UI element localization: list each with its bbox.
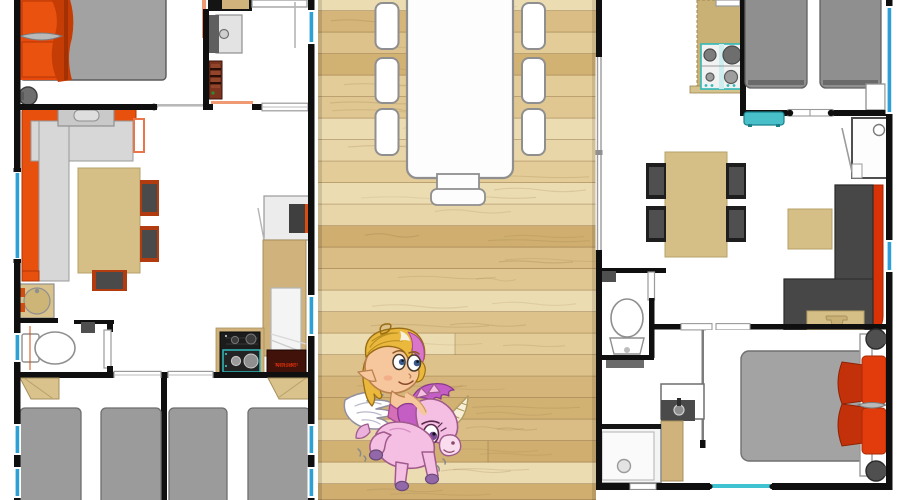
svg-text:LAVE-VAIS.: LAVE-VAIS.	[274, 362, 298, 367]
